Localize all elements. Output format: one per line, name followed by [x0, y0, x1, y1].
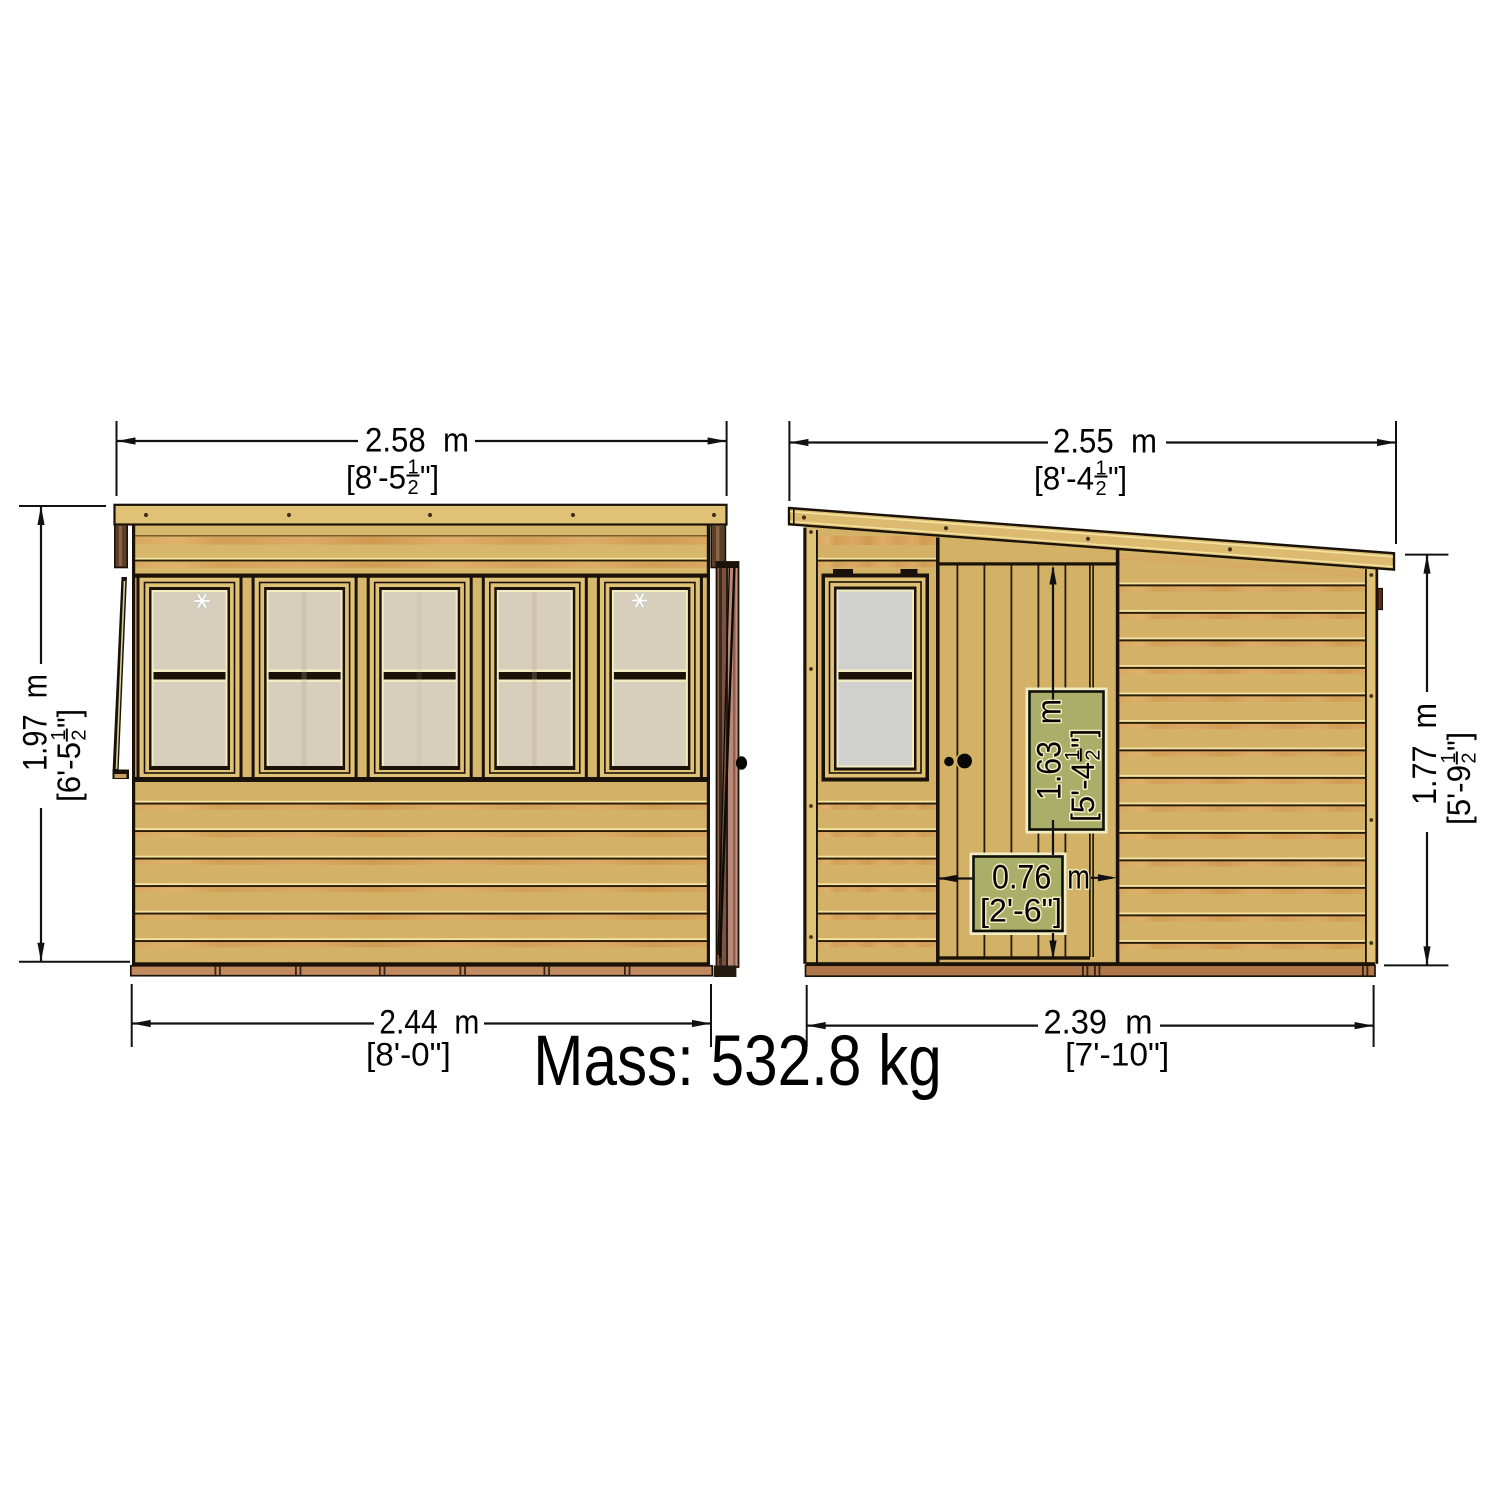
svg-text:"]: "]: [1065, 729, 1101, 748]
svg-text:"]: "]: [1108, 461, 1127, 497]
svg-text:[8'-5: [8'-5: [346, 460, 406, 496]
svg-text:0.76: 0.76: [992, 859, 1051, 897]
svg-text:2: 2: [1095, 478, 1106, 500]
svg-text:1.97 m: 1.97 m: [17, 674, 55, 771]
svg-text:[6'-5: [6'-5: [51, 742, 87, 802]
svg-text:[8'-4: [8'-4: [1034, 461, 1094, 497]
svg-text:2: 2: [407, 477, 418, 499]
svg-text:[5'-4: [5'-4: [1065, 762, 1101, 822]
svg-text:[8'-0"]: [8'-0"]: [366, 1036, 451, 1072]
svg-text:2.58 m: 2.58 m: [365, 421, 469, 459]
svg-text:"]: "]: [420, 460, 439, 496]
svg-text:2: 2: [69, 729, 91, 740]
svg-text:2: 2: [1459, 752, 1481, 763]
svg-text:2.55 m: 2.55 m: [1053, 422, 1157, 460]
svg-text:"]: "]: [51, 709, 87, 728]
svg-text:[7'-10"]: [7'-10"]: [1065, 1036, 1169, 1072]
svg-text:m: m: [1067, 859, 1090, 897]
svg-text:2: 2: [1083, 749, 1105, 760]
svg-text:"]: "]: [1441, 732, 1477, 751]
svg-text:[5'-9: [5'-9: [1441, 765, 1477, 825]
svg-text:Mass: 532.8 kg: Mass: 532.8 kg: [533, 1022, 941, 1101]
svg-text:[2'-6"]: [2'-6"]: [980, 892, 1062, 928]
